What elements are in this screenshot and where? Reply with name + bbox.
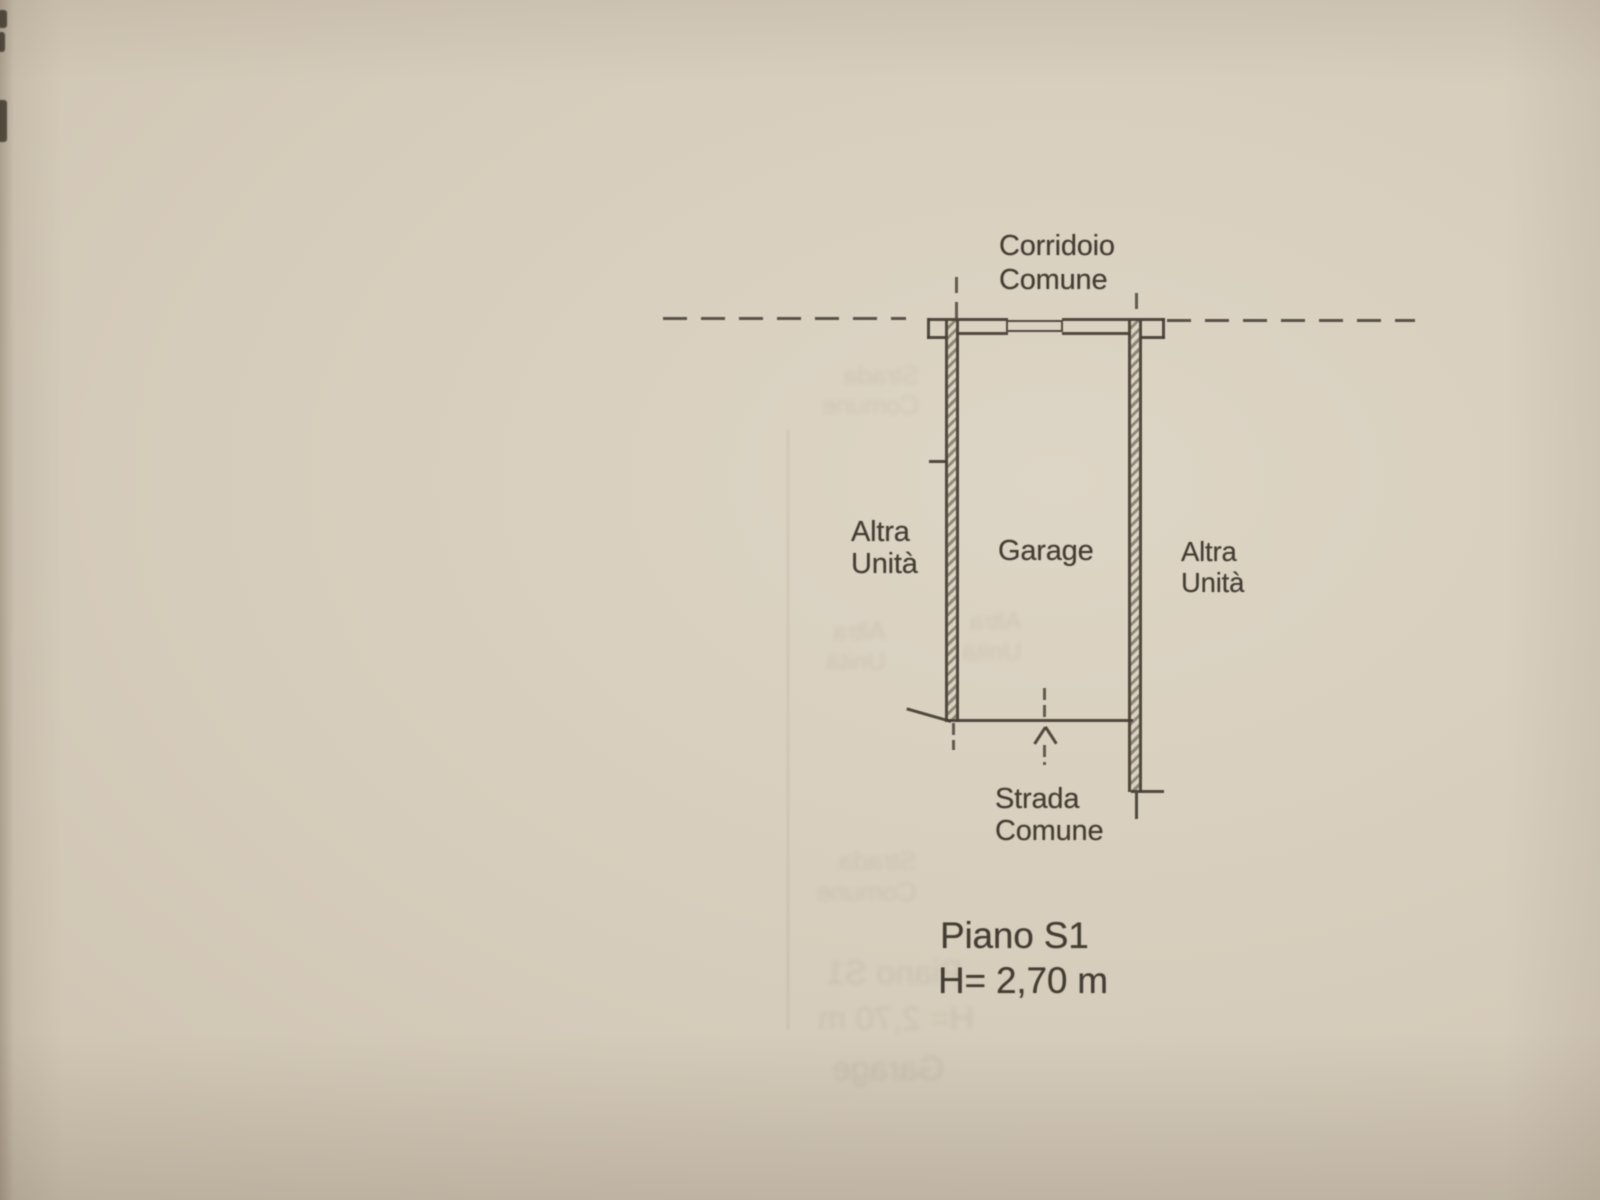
entrance-arrow-head-right bbox=[1044, 726, 1057, 744]
wall-top-outer-right bbox=[1062, 318, 1165, 321]
entrance-arrow-shaft bbox=[1043, 745, 1046, 765]
garage-front-line bbox=[945, 719, 1133, 722]
label-altra-unita-right: Altra Unità bbox=[1181, 536, 1244, 598]
wall-top-outer-left bbox=[928, 318, 1008, 321]
label-garage: Garage bbox=[998, 535, 1094, 568]
wall-left bbox=[945, 320, 959, 722]
entrance-arrow-dash-inner bbox=[1043, 688, 1046, 718]
label-altezza: H= 2,70 m bbox=[938, 960, 1108, 1002]
corner-tick-bottom-right-v bbox=[1135, 793, 1138, 819]
label-corridoio-comune: Corridoio Comune bbox=[999, 229, 1115, 297]
wall-stub-right bbox=[1140, 336, 1165, 339]
door-threshold bbox=[1006, 320, 1063, 332]
photographed-floor-plan-page: Strada Comune Altra Unità Altra Unità St… bbox=[0, 0, 1600, 1200]
boundary-tick-right bbox=[1135, 293, 1138, 315]
boundary-dashed-line-right bbox=[1167, 319, 1415, 322]
label-altra-unita-left: Altra Unità bbox=[851, 516, 918, 580]
wall-top-inner-left bbox=[957, 332, 1008, 335]
corner-tick-bottom-left bbox=[952, 723, 955, 750]
boundary-dashed-line-left bbox=[663, 317, 906, 320]
floor-plan-drawing: Corridoio Comune Altra Unità Garage Altr… bbox=[0, 0, 1600, 1200]
label-strada-comune: Strada Comune bbox=[995, 783, 1103, 847]
wall-stub-left bbox=[927, 336, 947, 339]
wall-top-inner-right bbox=[1062, 332, 1130, 335]
wall-tick-left-mid bbox=[929, 460, 947, 463]
entrance-arrow-head-left bbox=[1033, 726, 1046, 744]
label-piano-s1: Piano S1 bbox=[940, 915, 1089, 957]
boundary-tick-left bbox=[955, 277, 958, 318]
